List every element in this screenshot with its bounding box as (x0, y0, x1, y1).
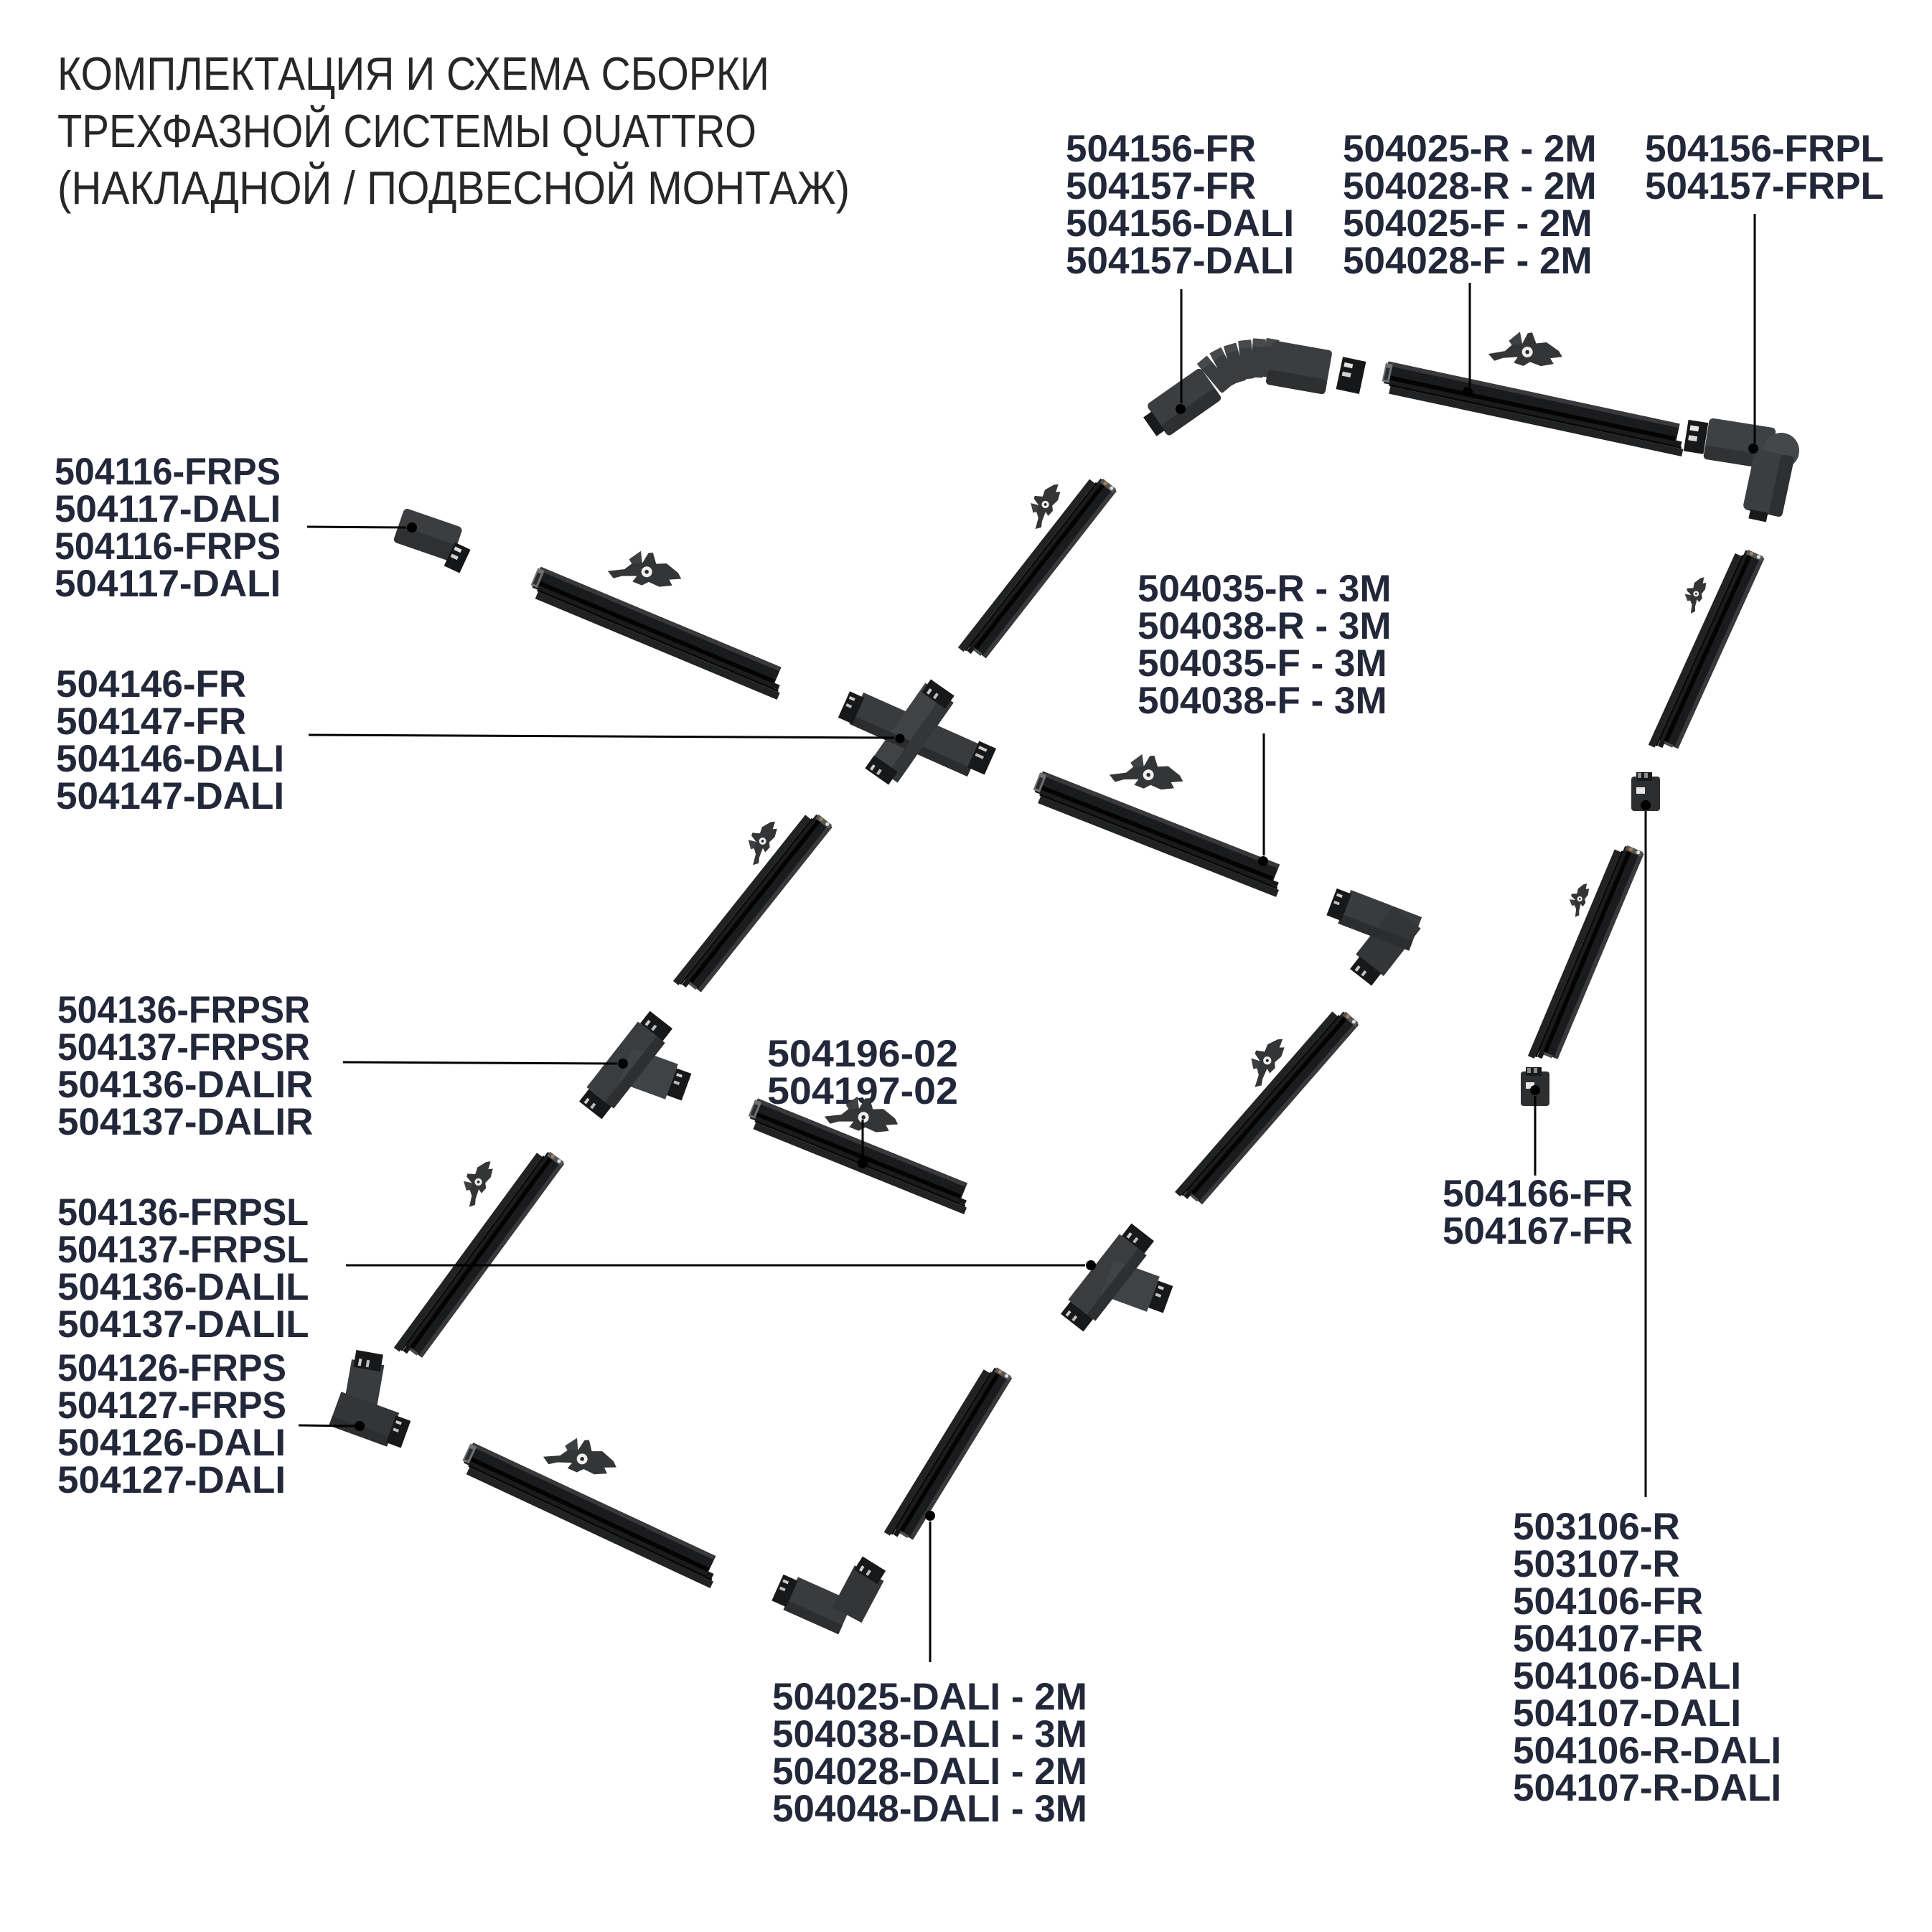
svg-text:504137-DALIR: 504137-DALIR (57, 1101, 313, 1143)
svg-text:504166-FR: 504166-FR (1443, 1173, 1633, 1215)
svg-text:504028-R - 2M: 504028-R - 2M (1343, 165, 1597, 207)
svg-text:504156-DALI: 504156-DALI (1066, 202, 1294, 245)
svg-text:504116-FRPS: 504116-FRPS (55, 451, 281, 493)
svg-text:504117-DALI: 504117-DALI (55, 563, 281, 605)
svg-text:504146-FR: 504146-FR (56, 663, 246, 705)
svg-text:504117-DALI: 504117-DALI (55, 488, 281, 530)
svg-text:504157-FR: 504157-FR (1066, 165, 1256, 207)
svg-text:504038-F - 3M: 504038-F - 3M (1138, 680, 1387, 722)
svg-text:504156-FRPL: 504156-FRPL (1645, 128, 1884, 170)
svg-text:КОМПЛЕКТАЦИЯ И СХЕМА СБОРКИ: КОМПЛЕКТАЦИЯ И СХЕМА СБОРКИ (57, 47, 769, 100)
svg-text:504157-DALI: 504157-DALI (1066, 240, 1294, 282)
svg-text:504196-02: 504196-02 (767, 1033, 958, 1075)
svg-text:504126-DALI: 504126-DALI (57, 1422, 286, 1464)
svg-text:504116-FRPS: 504116-FRPS (55, 525, 281, 568)
svg-text:504048-DALI - 3M: 504048-DALI - 3M (772, 1788, 1087, 1830)
svg-text:504147-DALI: 504147-DALI (56, 775, 284, 817)
svg-text:504167-FR: 504167-FR (1443, 1210, 1633, 1252)
svg-text:504035-R - 3M: 504035-R - 3M (1138, 568, 1392, 610)
svg-text:503107-R: 503107-R (1513, 1543, 1680, 1585)
svg-text:504136-FRPSR: 504136-FRPSR (57, 989, 310, 1031)
svg-text:504157-FRPL: 504157-FRPL (1645, 165, 1884, 207)
svg-text:504038-DALI - 3M: 504038-DALI - 3M (772, 1713, 1087, 1755)
svg-text:504025-DALI - 2M: 504025-DALI - 2M (772, 1676, 1087, 1718)
svg-text:ТРЕХФАЗНОЙ СИСТЕМЫ QUATTRO: ТРЕХФАЗНОЙ СИСТЕМЫ QUATTRO (57, 105, 756, 157)
svg-text:504028-F - 2M: 504028-F - 2M (1343, 240, 1593, 282)
svg-text:504038-R - 3M: 504038-R - 3M (1138, 605, 1392, 647)
svg-text:504136-FRPSL: 504136-FRPSL (57, 1191, 309, 1234)
svg-text:504156-FR: 504156-FR (1066, 128, 1256, 170)
svg-text:504127-DALI: 504127-DALI (57, 1459, 286, 1501)
svg-text:504146-DALI: 504146-DALI (56, 738, 284, 780)
svg-text:504106-R-DALI: 504106-R-DALI (1513, 1730, 1781, 1772)
svg-text:504136-DALIL: 504136-DALIL (57, 1266, 309, 1308)
svg-text:504107-DALI: 504107-DALI (1513, 1692, 1741, 1735)
svg-text:504035-F - 3M: 504035-F - 3M (1138, 642, 1387, 685)
svg-text:504127-FRPS: 504127-FRPS (57, 1384, 286, 1427)
svg-text:504106-FR: 504106-FR (1513, 1580, 1703, 1623)
svg-text:504025-F - 2M: 504025-F - 2M (1343, 202, 1593, 245)
svg-text:504136-DALIR: 504136-DALIR (57, 1064, 313, 1106)
svg-text:504137-FRPSL: 504137-FRPSL (57, 1229, 309, 1271)
svg-text:504137-FRPSR: 504137-FRPSR (57, 1026, 310, 1069)
svg-text:504107-R-DALI: 504107-R-DALI (1513, 1767, 1781, 1809)
svg-text:504137-DALIL: 504137-DALIL (57, 1303, 309, 1346)
svg-text:504147-FR: 504147-FR (56, 700, 246, 743)
svg-text:504025-R - 2M: 504025-R - 2M (1343, 128, 1597, 170)
svg-text:504106-DALI: 504106-DALI (1513, 1655, 1741, 1697)
svg-text:504107-FR: 504107-FR (1513, 1618, 1703, 1660)
svg-text:504126-FRPS: 504126-FRPS (57, 1347, 286, 1389)
svg-text:504028-DALI - 2M: 504028-DALI - 2M (772, 1750, 1087, 1793)
svg-text:503106-R: 503106-R (1513, 1506, 1680, 1548)
svg-text:(НАКЛАДНОЙ / ПОДВЕСНОЙ МОНТАЖ): (НАКЛАДНОЙ / ПОДВЕСНОЙ МОНТАЖ) (57, 161, 850, 214)
